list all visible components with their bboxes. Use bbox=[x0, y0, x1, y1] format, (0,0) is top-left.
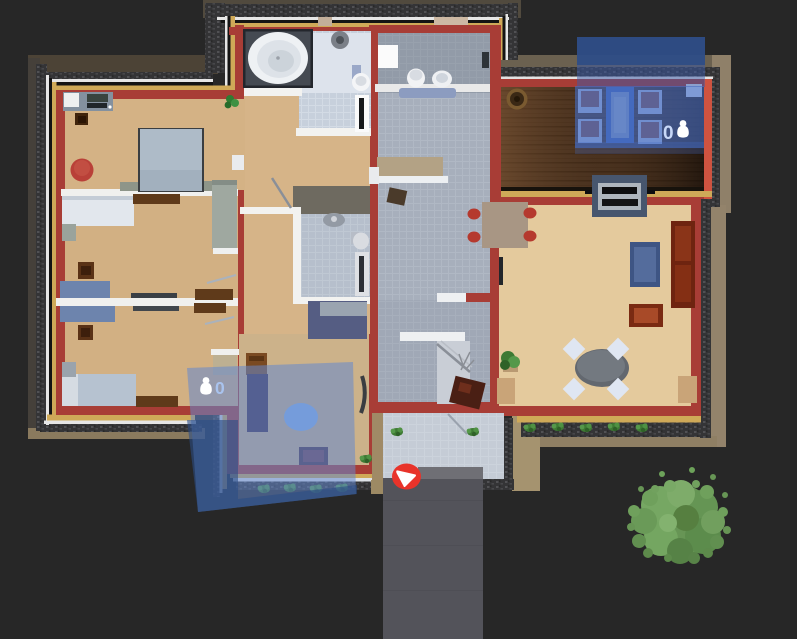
svg-text:0: 0 bbox=[215, 378, 225, 398]
svg-text:0: 0 bbox=[663, 123, 674, 144]
